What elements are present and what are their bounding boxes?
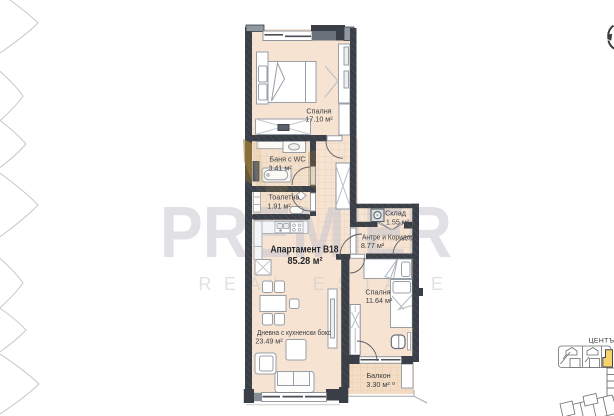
svg-text:Апартамент B18: Апартамент B18 xyxy=(271,245,339,256)
svg-text:23.49 м²: 23.49 м² xyxy=(255,337,283,346)
svg-text:3.41 м²: 3.41 м² xyxy=(268,164,292,173)
svg-text:Склад: Склад xyxy=(385,209,407,218)
svg-text:1.91 м²: 1.91 м² xyxy=(267,202,291,211)
svg-text:85.28 м²: 85.28 м² xyxy=(288,256,324,267)
svg-text:8.77 м²: 8.77 м² xyxy=(361,241,385,250)
svg-text:3.30 м²: 3.30 м² xyxy=(366,380,390,389)
svg-text:Тоалетна: Тоалетна xyxy=(268,193,299,202)
svg-text:ЦЕНТЪР: ЦЕНТЪР xyxy=(589,338,614,345)
svg-text:17.10 м²: 17.10 м² xyxy=(305,115,333,124)
svg-text:1.55 м²: 1.55 м² xyxy=(386,218,410,227)
svg-text:11.64 м²: 11.64 м² xyxy=(366,296,393,305)
svg-text:Балкон: Балкон xyxy=(366,371,390,380)
svg-text:Баня с WC: Баня с WC xyxy=(269,155,305,164)
